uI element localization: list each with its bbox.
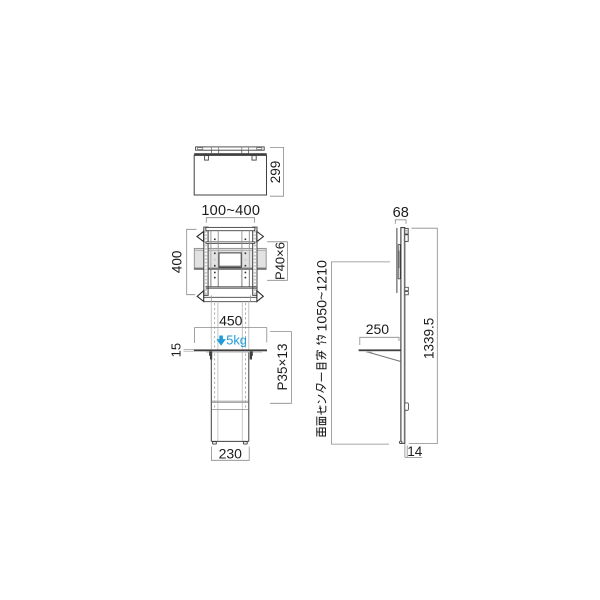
svg-text:1339.5: 1339.5: [421, 318, 436, 359]
svg-text:400: 400: [169, 251, 184, 274]
svg-text:1050~1210: 1050~1210: [314, 260, 330, 332]
svg-text:68: 68: [393, 205, 409, 221]
svg-text:14: 14: [407, 444, 423, 459]
svg-text:230: 230: [219, 446, 243, 462]
svg-text:100~400: 100~400: [201, 203, 260, 219]
svg-text:15: 15: [169, 343, 184, 357]
svg-text:250: 250: [366, 321, 390, 337]
svg-text:5kg: 5kg: [226, 332, 247, 347]
svg-text:450: 450: [219, 313, 243, 329]
svg-text:P35×13: P35×13: [275, 344, 290, 391]
svg-text:P40×6: P40×6: [272, 242, 287, 280]
svg-text:299: 299: [268, 161, 283, 184]
